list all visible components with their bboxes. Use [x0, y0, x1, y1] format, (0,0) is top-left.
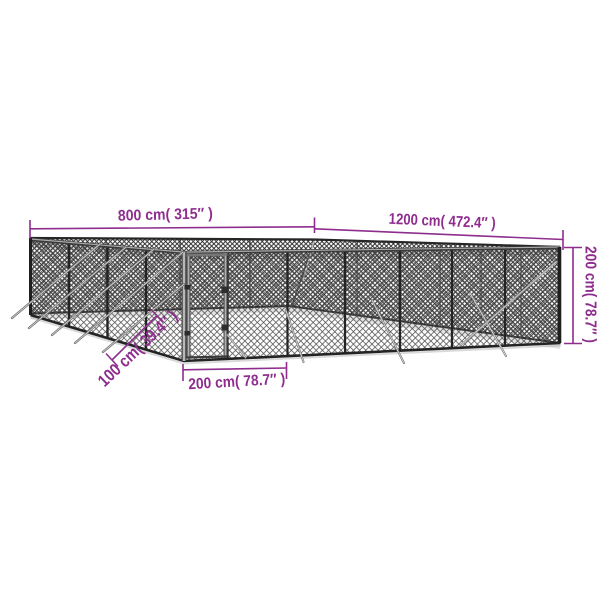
- svg-text:800 cm( 315″ ): 800 cm( 315″ ): [118, 205, 213, 224]
- svg-text:200 cm( 78.7″ ): 200 cm( 78.7″ ): [582, 246, 599, 343]
